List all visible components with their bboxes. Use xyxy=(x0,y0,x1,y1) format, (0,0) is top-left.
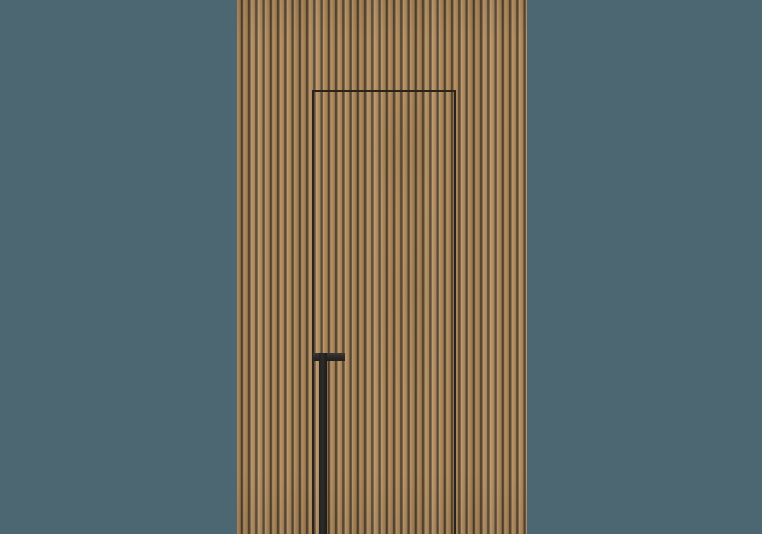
wood-slat-wall-panel xyxy=(237,0,527,534)
door-handle-top-cap xyxy=(313,353,345,361)
wood-grain-detail xyxy=(314,92,454,534)
door-handle-vertical-bar xyxy=(319,353,327,534)
studio-backdrop xyxy=(0,0,762,534)
concealed-door-seam xyxy=(312,90,456,534)
